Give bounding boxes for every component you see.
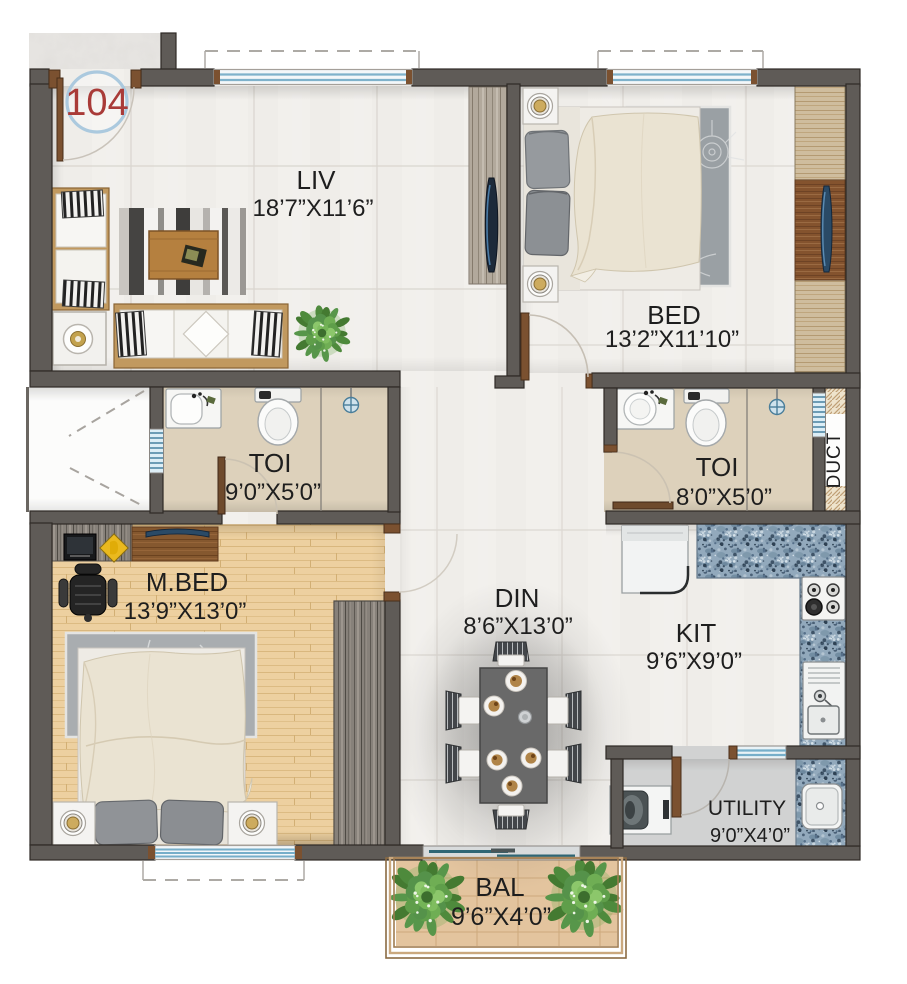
svg-text:DUCT: DUCT: [824, 432, 845, 489]
svg-text:9’0”X4’0”: 9’0”X4’0”: [710, 825, 790, 847]
svg-text:9’0”X5’0”: 9’0”X5’0”: [225, 479, 321, 506]
svg-text:LIV: LIV: [296, 165, 336, 195]
svg-text:UTILITY: UTILITY: [708, 797, 786, 820]
svg-text:104: 104: [65, 82, 128, 124]
svg-text:DIN: DIN: [495, 583, 540, 613]
svg-text:9’6”X4’0”: 9’6”X4’0”: [451, 903, 551, 931]
svg-text:M.BED: M.BED: [146, 567, 228, 597]
svg-text:18’7”X11’6”: 18’7”X11’6”: [253, 195, 374, 222]
svg-text:8’0”X5’0”: 8’0”X5’0”: [676, 484, 772, 511]
svg-text:BAL: BAL: [475, 872, 524, 902]
svg-text:8’6”X13’0”: 8’6”X13’0”: [463, 613, 572, 640]
svg-text:TOI: TOI: [249, 448, 292, 478]
svg-text:TOI: TOI: [696, 452, 739, 482]
svg-text:9’6”X9’0”: 9’6”X9’0”: [646, 648, 742, 675]
svg-text:KIT: KIT: [676, 618, 717, 648]
svg-text:13’9”X13’0”: 13’9”X13’0”: [124, 598, 247, 625]
svg-text:13’2”X11’10”: 13’2”X11’10”: [605, 326, 739, 353]
